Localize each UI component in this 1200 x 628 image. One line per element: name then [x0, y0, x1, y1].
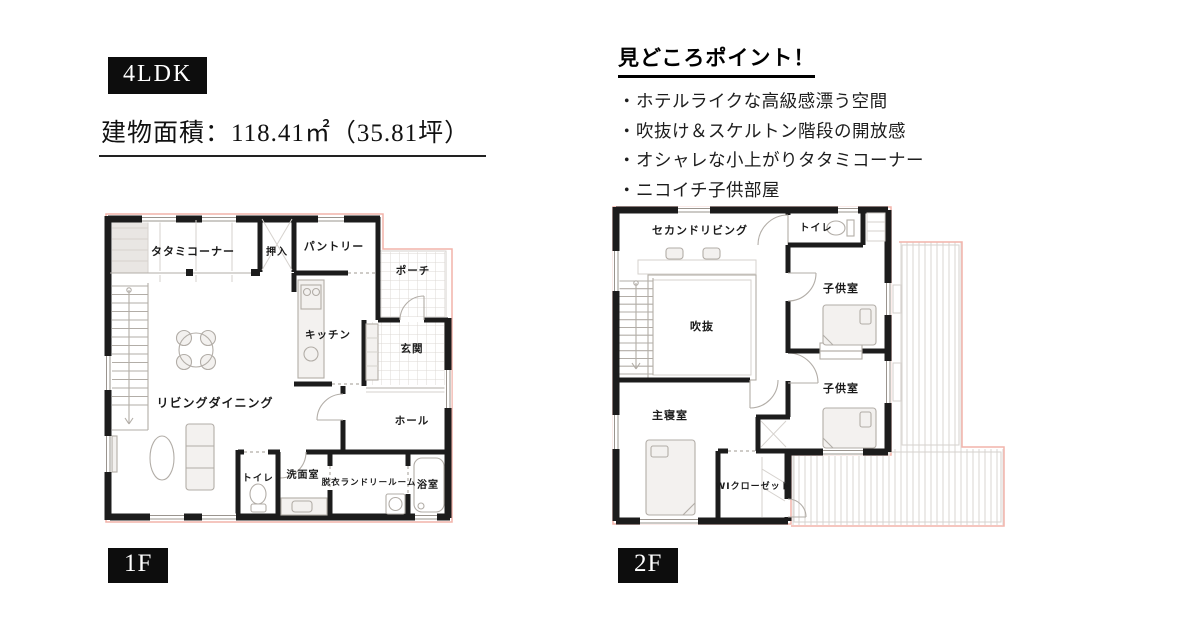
toilet-fixture: [250, 484, 266, 512]
kids-closet: [820, 351, 862, 359]
porch-tiles: [379, 252, 445, 317]
floor-label-2f: 2F: [618, 548, 678, 583]
room-label-laundry: 脱衣ランドリールーム: [322, 477, 417, 488]
room-label-kids2: 子供室: [823, 381, 859, 395]
room-label-kitchen: キッチン: [305, 329, 351, 341]
vanity: [281, 498, 327, 515]
floor-label-1f: 1F: [108, 548, 168, 583]
room-label-genkan: 玄関: [401, 342, 424, 355]
room-label-toilet-2f: トイレ: [800, 222, 833, 234]
room-label-pantry: パントリー: [304, 240, 365, 253]
room-label-kids1: 子供室: [823, 281, 859, 295]
washer: [386, 494, 405, 514]
highlights-section: 見どころポイント！ ・ホテルライクな高級感漂う空間 ・吹抜け＆スケルトン階段の開…: [618, 42, 1038, 205]
rug: [150, 436, 174, 480]
room-label-tatami: タタミコーナー: [151, 245, 235, 258]
kids2-door-arc: [788, 353, 818, 383]
room-label-washroom: 洗面室: [287, 468, 320, 481]
tv-board: [112, 436, 117, 472]
oshiire-doors: [262, 219, 292, 270]
highlights-title: 見どころポイント！: [618, 42, 815, 78]
room-label-wic: WIクローゼット: [715, 480, 790, 492]
counter-chair: [666, 248, 683, 259]
highlight-item: ・オシャレな小上がりタタミコーナー: [618, 146, 1038, 176]
floorplan-flyer: { "header": { "type_label": "4LDK", "are…: [0, 0, 1200, 628]
layout-type-badge: 4LDK: [108, 57, 207, 94]
toilet-closet: [867, 213, 885, 241]
highlights-list: ・ホテルライクな高級感漂う空間 ・吹抜け＆スケルトン階段の開放感 ・オシャレな小…: [618, 87, 1038, 205]
sofa: [186, 424, 214, 490]
room-label-hall: ホール: [395, 415, 430, 427]
hall-door-arc: [317, 394, 343, 420]
building-area-text: 建物面積：118.41㎡（35.81坪）: [99, 113, 486, 157]
room-label-living: リビングダイニング: [156, 395, 273, 410]
highlight-item: ・ホテルライクな高級感漂う空間: [618, 87, 1038, 117]
hall-toilet-door-arc: [758, 215, 788, 245]
room-label-master: 主寝室: [652, 408, 688, 422]
room-label-second-living: セカンドリビング: [652, 223, 748, 237]
floorplan-2f: セカンドリビング トイレ 子供室 子供室 吹抜 主寝室 WIクローゼット: [610, 203, 1020, 538]
dining-table: [177, 331, 216, 370]
room-label-porch: ポーチ: [396, 264, 431, 277]
stairs-1f: [112, 286, 148, 405]
kids1-door-arc: [788, 273, 816, 301]
kids-bed-2: [823, 408, 876, 448]
room-label-toilet-1f: トイレ: [242, 473, 274, 484]
stair-upper-strip: [112, 219, 148, 273]
highlight-item: ・吹抜け＆スケルトン階段の開放感: [618, 117, 1038, 147]
master-bed: [646, 440, 695, 515]
highlight-item: ・ニコイチ子供部屋: [618, 176, 1038, 206]
room-label-bath: 浴室: [417, 478, 439, 491]
floorplan-1f: タタミコーナー 押入 パントリー ポーチ キッチン 玄関 リビングダイニング ホ…: [102, 208, 482, 543]
master-door-arc: [750, 380, 778, 408]
void-railing: [638, 260, 756, 274]
counter-chair: [703, 248, 720, 259]
room-label-oshiire: 押入: [266, 245, 288, 258]
kids-bed-1: [823, 305, 876, 345]
room-label-void: 吹抜: [690, 319, 714, 333]
